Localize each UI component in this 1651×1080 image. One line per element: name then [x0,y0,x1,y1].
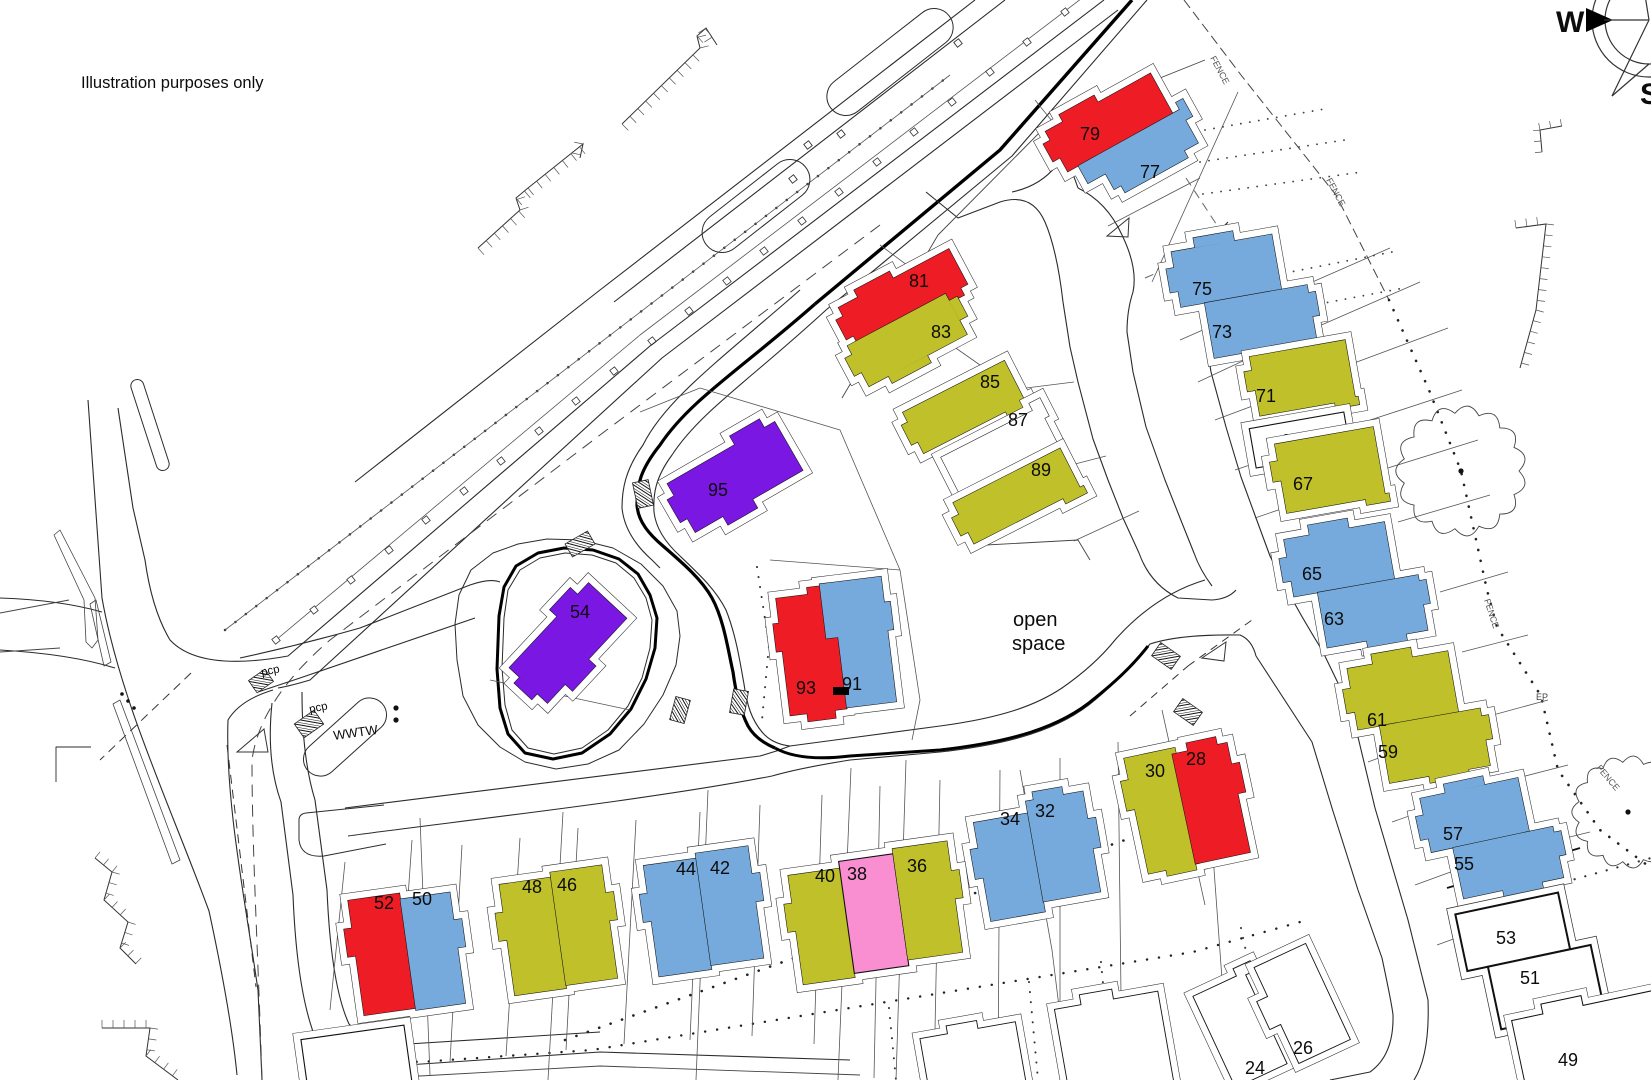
svg-text:W: W [1556,6,1585,39]
svg-text:73: 73 [1212,322,1232,342]
svg-text:93: 93 [796,678,816,698]
svg-text:89: 89 [1031,460,1051,480]
svg-text:71: 71 [1256,386,1276,406]
svg-text:61: 61 [1367,710,1387,730]
svg-text:79: 79 [1080,124,1100,144]
svg-text:32: 32 [1035,801,1055,821]
svg-text:75: 75 [1192,279,1212,299]
svg-text:49: 49 [1558,1050,1578,1070]
svg-text:65: 65 [1302,564,1322,584]
svg-text:50: 50 [412,889,432,909]
svg-text:52: 52 [374,893,394,913]
svg-text:40: 40 [815,866,835,886]
svg-text:36: 36 [907,856,927,876]
svg-text:87: 87 [1008,410,1028,430]
svg-text:30: 30 [1145,761,1165,781]
svg-text:open: open [1013,609,1058,631]
svg-text:S: S [1640,78,1651,111]
svg-text:26: 26 [1293,1038,1313,1058]
svg-text:57: 57 [1443,824,1463,844]
svg-text:53: 53 [1496,928,1516,948]
svg-text:42: 42 [710,858,730,878]
svg-text:55: 55 [1454,854,1474,874]
svg-text:77: 77 [1140,162,1160,182]
svg-text:Illustration purposes only: Illustration purposes only [81,74,264,92]
svg-text:81: 81 [909,271,929,291]
svg-text:28: 28 [1186,749,1206,769]
svg-text:34: 34 [1000,809,1020,829]
svg-text:24: 24 [1245,1058,1265,1078]
svg-text:46: 46 [557,875,577,895]
svg-text:85: 85 [980,372,1000,392]
svg-text:54: 54 [570,602,590,622]
svg-text:38: 38 [847,864,867,884]
svg-text:48: 48 [522,877,542,897]
svg-text:83: 83 [931,322,951,342]
svg-text:51: 51 [1520,968,1540,988]
svg-text:95: 95 [708,480,728,500]
svg-text:44: 44 [676,859,696,879]
svg-text:space: space [1012,633,1065,655]
svg-text:59: 59 [1378,742,1398,762]
svg-text:67: 67 [1293,474,1313,494]
svg-text:EP: EP [1536,692,1548,702]
svg-text:63: 63 [1324,609,1344,629]
